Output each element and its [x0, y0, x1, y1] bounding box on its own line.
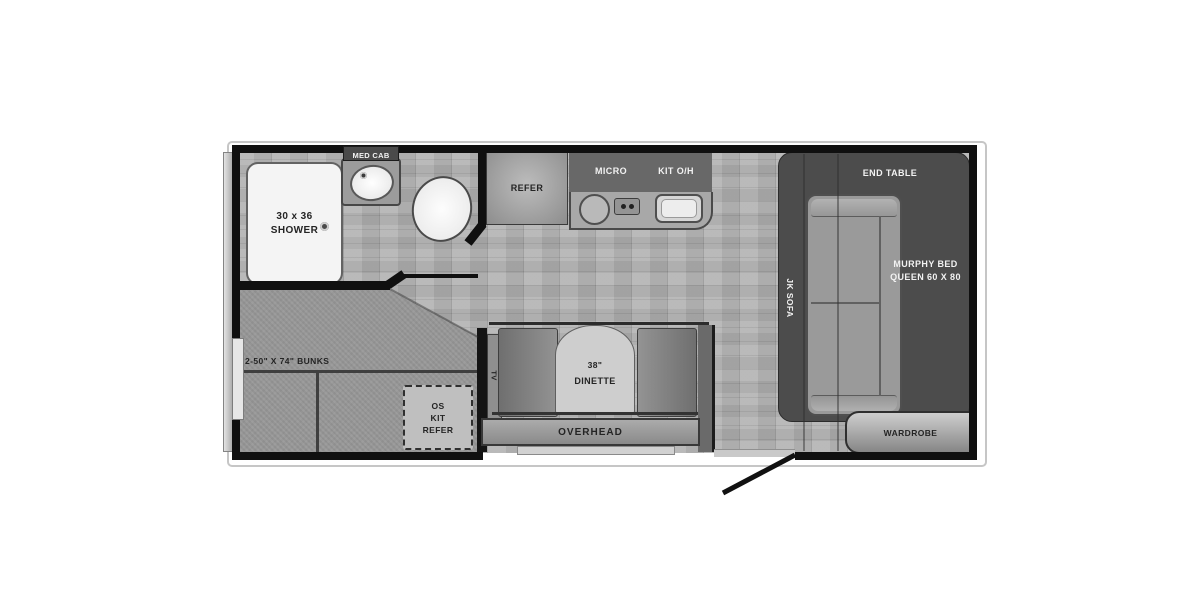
- overhead-cabinet: OVERHEAD: [481, 418, 700, 446]
- jk-sofa: [806, 194, 902, 416]
- dinette-bench-left: [498, 328, 558, 417]
- dinette-slideout-wall: [698, 325, 715, 452]
- refer-label: REFER: [511, 183, 544, 193]
- shower-label: SHOWER: [271, 225, 318, 236]
- dinette-seat-edge: [492, 412, 698, 415]
- dinette-bench-right: [637, 328, 697, 417]
- os-label: OS: [431, 401, 444, 411]
- shower-size-label: 30 x 36: [276, 211, 312, 222]
- kitchen-partition-wall: [478, 153, 486, 227]
- shower-drain-icon: [320, 222, 329, 231]
- bunk-divider: [240, 370, 477, 373]
- wall-bottom: [795, 452, 977, 460]
- bath-sink-drain-icon: [360, 172, 367, 179]
- wardrobe: WARDROBE: [845, 411, 976, 454]
- dinette-table: 38" DINETTE: [555, 325, 635, 415]
- med-cab-label: MED CAB: [352, 151, 389, 160]
- dinette-size-label: 38": [588, 360, 603, 370]
- cooktop-icon: [655, 194, 703, 223]
- wall-right: [969, 145, 977, 460]
- overhead-label: OVERHEAD: [558, 427, 623, 438]
- end-table-label: END TABLE: [840, 168, 940, 178]
- bathroom-wall: [236, 281, 390, 290]
- kitchen-counter-overhead: MICRO KIT O/H: [569, 151, 712, 194]
- refer-label: REFER: [423, 425, 454, 435]
- micro-label: MICRO: [583, 166, 639, 176]
- bath-sink-cabinet: [341, 158, 401, 206]
- bath-sink-icon: [348, 162, 397, 204]
- jk-sofa-label: JK SOFA: [785, 268, 795, 328]
- bunk-divider: [316, 372, 319, 452]
- wall-bottom: [232, 452, 483, 460]
- refrigerator: REFER: [486, 151, 568, 225]
- murphy-bed-label: MURPHY BED QUEEN 60 X 80: [873, 259, 978, 282]
- wardrobe-label: WARDROBE: [884, 428, 938, 438]
- kitchen-sink-icon: [579, 194, 610, 225]
- bunk-window: [232, 338, 244, 420]
- kit-oh-label: KIT O/H: [645, 166, 707, 176]
- kitchen-faucet-icon: [614, 198, 640, 215]
- murphy-bed-line2: QUEEN 60 X 80: [873, 272, 978, 282]
- shower: 30 x 36 SHOWER: [246, 162, 343, 285]
- bunks-label: 2-50" X 74" BUNKS: [245, 356, 329, 366]
- sofa-seam: [879, 216, 881, 396]
- floorplan-canvas: END TABLE JK SOFA MURPHY BED QUEEN 60 X …: [0, 0, 1200, 600]
- sofa-armrest-top: [811, 199, 897, 217]
- sofa-seam: [811, 302, 879, 304]
- kit-label: KIT: [431, 413, 446, 423]
- kitchen-counter: [569, 192, 713, 230]
- sofa-armrest-bottom: [811, 395, 897, 411]
- murphy-bed-line1: MURPHY BED: [873, 259, 978, 269]
- slideout-step: [517, 446, 675, 455]
- outside-kitchen-refer: OS KIT REFER: [403, 385, 473, 450]
- entry-door-threshold: [714, 449, 795, 457]
- bathroom-pocket-door: [402, 274, 478, 278]
- medicine-cabinet: MED CAB: [343, 146, 399, 161]
- dinette-label: DINETTE: [574, 376, 615, 386]
